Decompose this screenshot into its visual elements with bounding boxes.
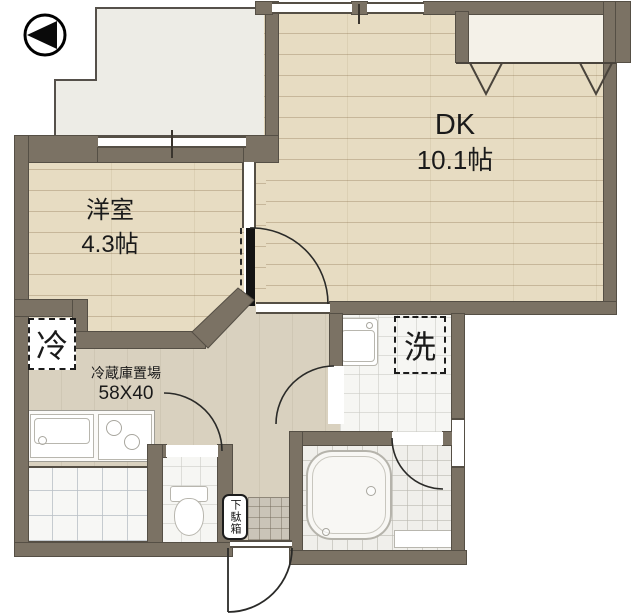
washroom-doorway [328,366,344,424]
wall-segment [290,432,392,445]
wall-segment [266,2,278,150]
outer-wall-left [15,136,28,556]
north-arrow-triangle [27,21,57,49]
wall-segment [616,2,630,62]
washer-space-box: 洗 [394,316,446,374]
washroom-wall [330,314,342,368]
kitchen-window-panel [25,466,150,543]
washbasin-bowl [341,330,375,362]
wall-segment [73,332,205,348]
north-arrow-icon [25,15,65,55]
bathtub-inner [312,456,386,534]
bathtub-handle [366,486,376,496]
washbasin-faucet [366,322,373,329]
closet-interior [468,12,604,62]
fridge-area-label: 冷蔵庫置場 [66,366,186,381]
shoe-cabinet-box: 下駄箱 [222,494,248,540]
wall-segment [256,2,272,14]
partition-glass [242,162,256,228]
toilet-bowl [174,498,204,536]
bathtub-drain [322,528,330,536]
bath-window [452,418,464,468]
entrance-tile [248,497,290,540]
western-balcony-window [98,136,246,148]
entrance-threshold [230,540,292,548]
room-dk-area: 10.1帖 [395,146,515,175]
western-door-leaf [246,228,255,306]
wall-segment [604,2,616,314]
shoe-cabinet-label: 下駄箱 [227,499,243,535]
western-doorway [256,302,330,314]
bathroom-doorway [392,432,443,445]
wall-segment [424,2,618,14]
wall-segment [244,136,278,162]
wall-segment [290,551,466,564]
fridge-symbol: 冷 [36,321,68,367]
wall-segment [352,2,367,14]
western-door-dashed-line [240,228,242,306]
entrance-door-arc [228,548,292,612]
wall-segment [98,148,246,162]
dk-window [367,2,424,14]
fridge-area-size: 58X40 [76,384,176,405]
dk-window [272,2,352,14]
room-western-area: 4.3帖 [58,232,162,258]
fridge-space-box: 冷 [28,318,76,370]
wall-segment [330,302,616,314]
wall-segment [148,445,162,543]
washer-symbol: 洗 [404,322,436,368]
room-dk-label: DK [400,110,510,142]
balcony [55,8,266,136]
stove-burner [106,420,122,436]
toilet-doorway [166,445,218,457]
bathroom-ledge [394,530,452,548]
outer-wall-bottom [15,543,232,556]
room-western-label: 洋室 [60,198,160,224]
sink-drain [38,436,47,445]
stove-burner [124,434,140,450]
floor-plan: 冷 洗 下駄箱 DK 10.1帖 洋室 4.3帖 冷蔵庫置場 58X40 [0,0,640,614]
closet-side-wall [456,12,468,62]
